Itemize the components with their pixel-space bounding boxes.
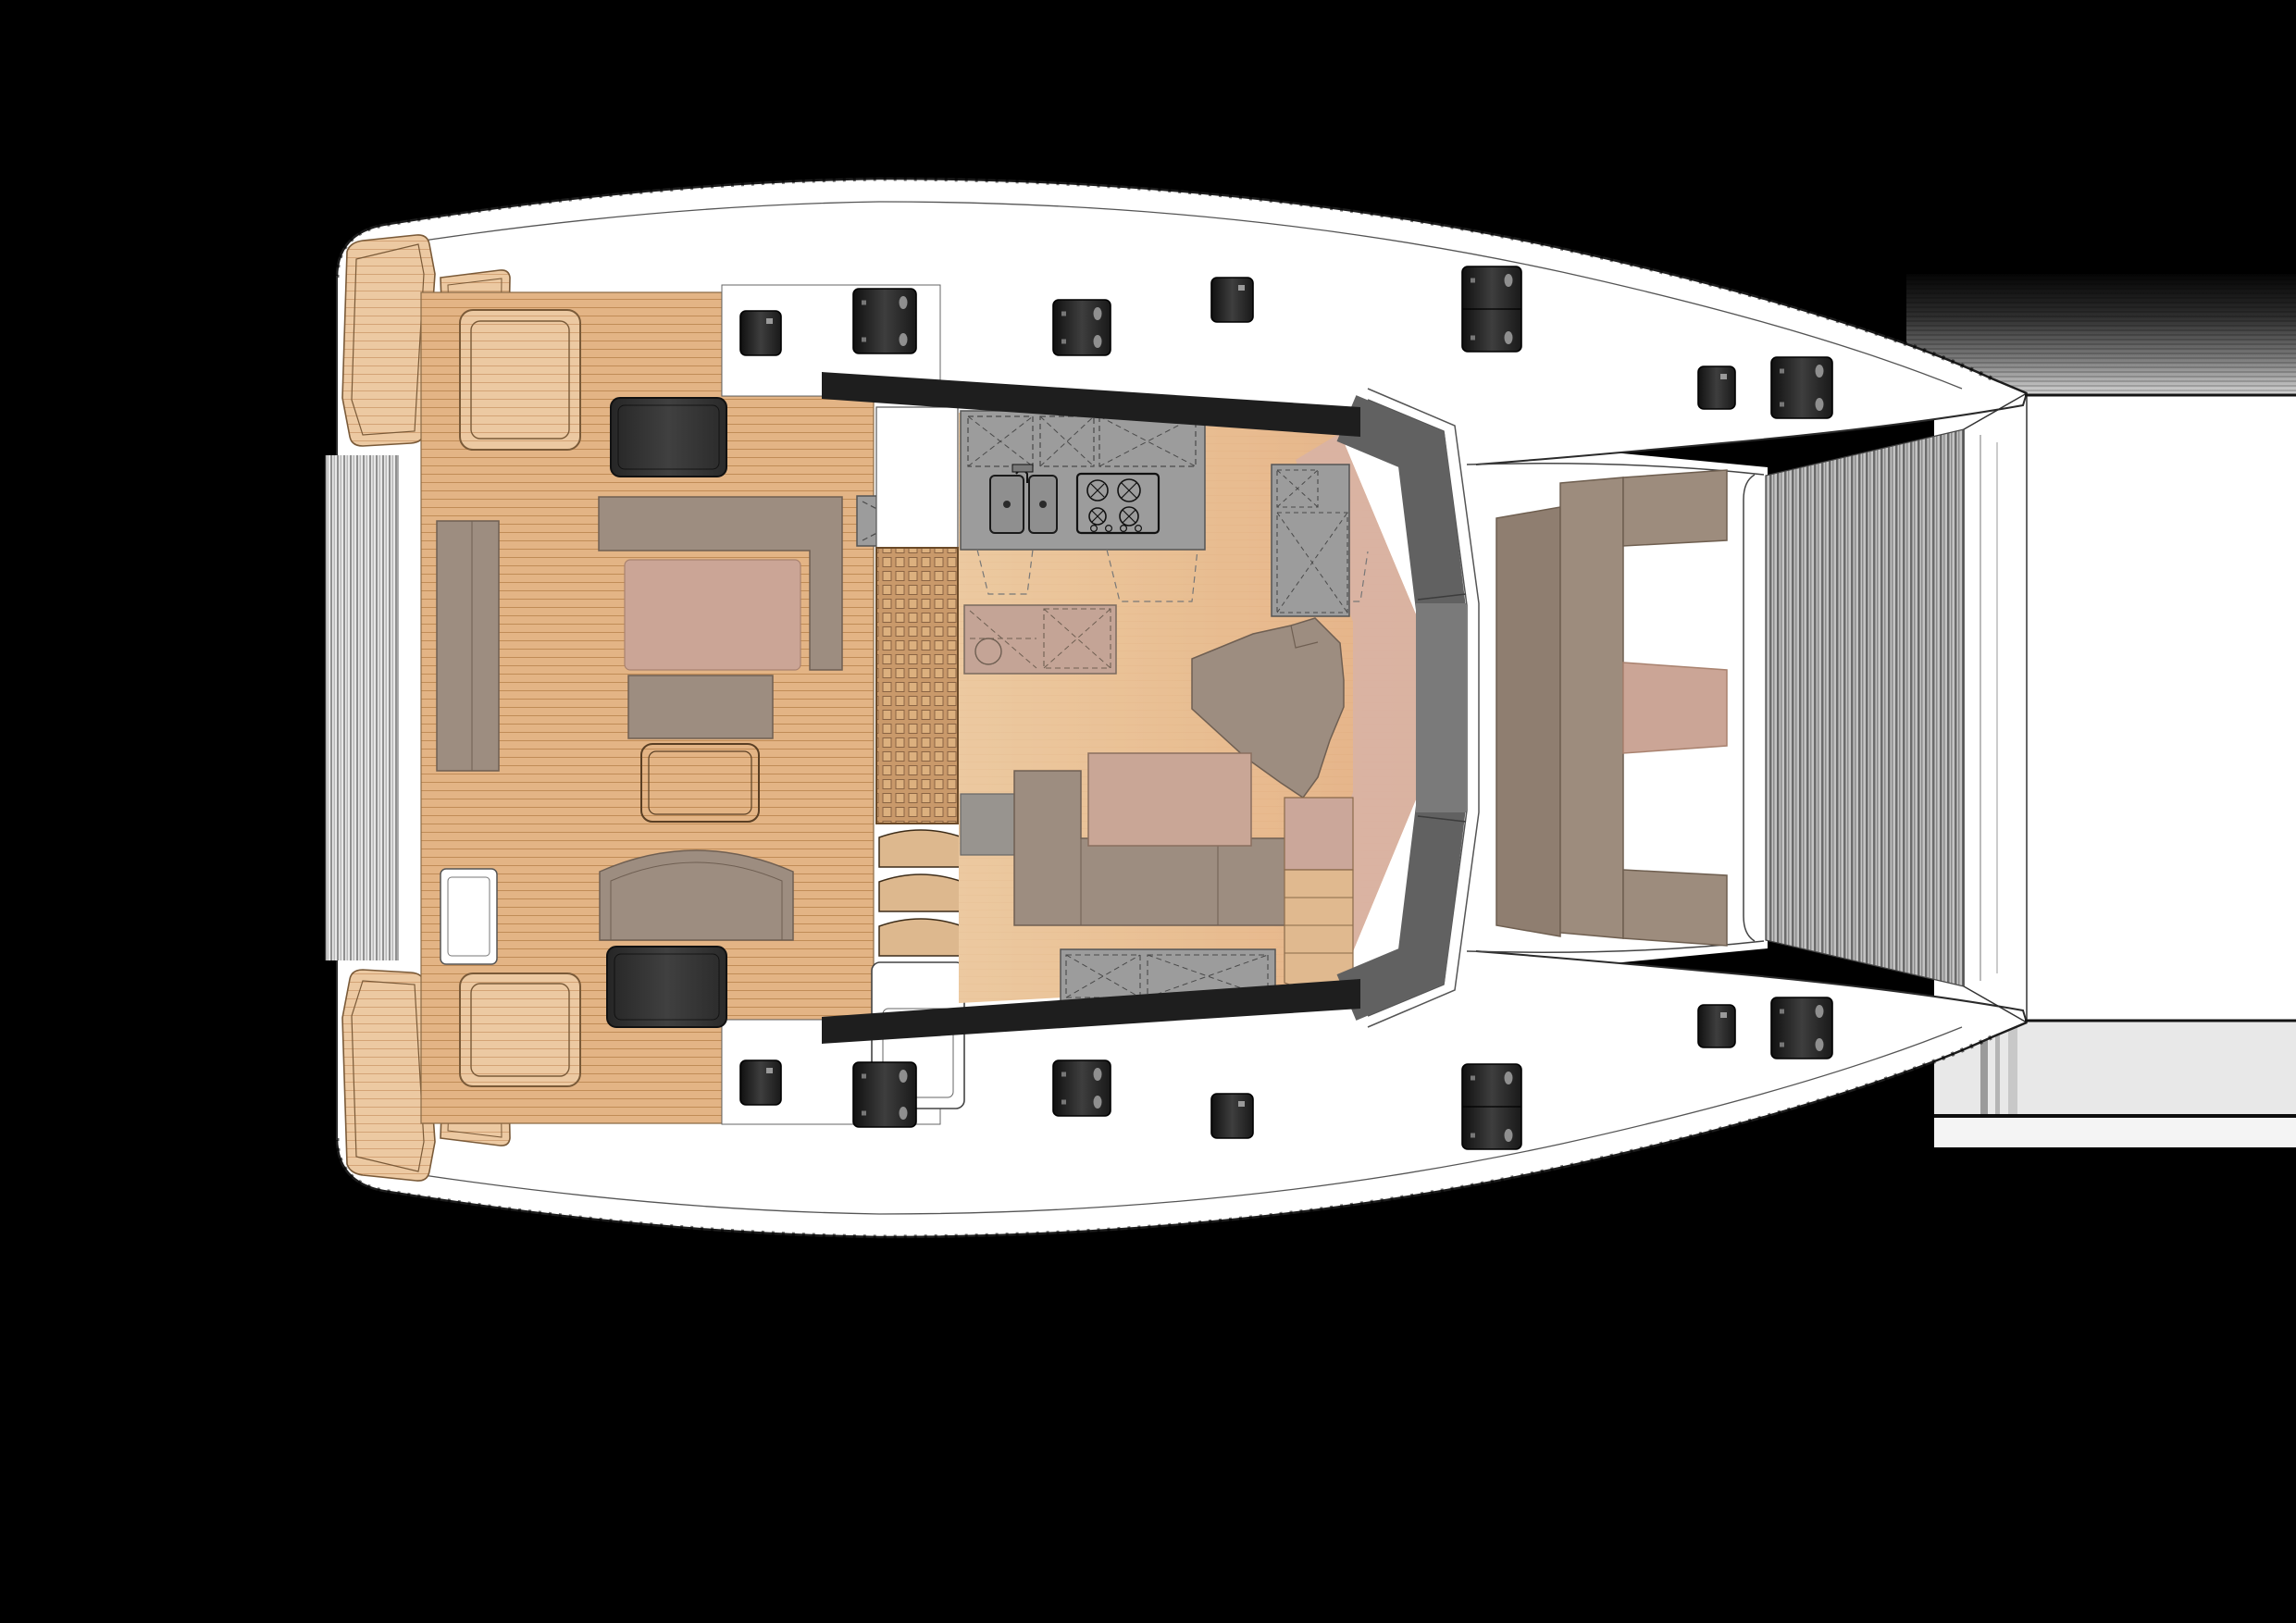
step-2 <box>879 874 962 911</box>
deck-hatch-medium-2 <box>1053 300 1111 355</box>
hatch-lid <box>1211 278 1253 322</box>
hatch-screw-icon-1 <box>1061 340 1066 344</box>
fwd-bench-backrest <box>1496 507 1560 936</box>
hatch-screw-icon-1 <box>1780 1043 1784 1047</box>
cockpit-table <box>641 744 759 822</box>
hatch-latch-icon <box>1720 374 1727 379</box>
hatch-screw-icon-1 <box>1471 1134 1475 1138</box>
door-panel <box>876 407 958 548</box>
deck-hatch-small-0 <box>740 311 781 355</box>
cockpit-bench-starboard-aft <box>460 973 580 1086</box>
step-1 <box>879 830 962 867</box>
hatch-screw-icon-0 <box>1061 312 1066 316</box>
hatch-hinge-icon-1 <box>1094 1096 1102 1109</box>
deck-hatch-medium-9 <box>1053 1060 1111 1116</box>
hatch-hinge-icon-1 <box>900 1107 908 1120</box>
hatch-hinge-icon-1 <box>900 333 908 346</box>
step-3 <box>879 919 962 956</box>
deck-hatch-small-7 <box>740 1060 781 1105</box>
hatch-lid <box>1053 300 1111 355</box>
hatch-screw-icon-1 <box>862 1111 866 1116</box>
hatch-lid <box>740 311 781 355</box>
galley-hob <box>1077 474 1159 533</box>
hatch-lid <box>1698 1005 1735 1047</box>
island-body <box>964 605 1116 674</box>
dining-area <box>1014 753 1286 925</box>
hatch-hinge-icon-0 <box>1816 365 1824 378</box>
deck-hatch-large-13 <box>1771 997 1832 1059</box>
cockpit-bench-port-aft <box>460 310 580 450</box>
forward-cockpit <box>1496 470 1727 946</box>
hull-stairs-starboard <box>1285 798 1353 997</box>
fwd-bench-arm-starboard <box>1623 870 1727 946</box>
galley-island <box>964 605 1116 674</box>
water-light-band <box>1934 1118 2296 1147</box>
cockpit-bench-mid <box>628 675 773 738</box>
transom-bench-backrest <box>437 521 499 771</box>
hatch-screw-icon-0 <box>1471 279 1475 283</box>
hatch-screw-icon-0 <box>862 301 866 305</box>
deck-hatch-small-5 <box>1698 366 1735 409</box>
forward-crossbeam <box>1964 393 2027 1022</box>
hatch-screw-icon-0 <box>862 1074 866 1079</box>
hatch-hinge-icon-0 <box>1816 1005 1824 1018</box>
hatch-latch-icon <box>1238 285 1245 291</box>
water-streak-v3 <box>2008 1022 2017 1114</box>
hatch-lid <box>853 1062 916 1127</box>
deck-hatch-small-12 <box>1698 1005 1735 1047</box>
port-aft-bench <box>460 310 580 450</box>
hob-frame <box>1077 474 1159 533</box>
dining-table <box>1088 753 1251 846</box>
fridge-body <box>1272 465 1349 616</box>
deck-hatch-large-1 <box>853 289 916 353</box>
deck-hatch-large-6 <box>1771 357 1832 418</box>
hatch-lid <box>1211 1094 1253 1138</box>
hatch-screw-icon-1 <box>1471 336 1475 341</box>
deck-hatch-small-3 <box>1211 278 1253 322</box>
hatch-hinge-icon-1 <box>1505 331 1513 344</box>
hatch-latch-icon <box>1720 1012 1727 1018</box>
starboard-aft-bench <box>460 973 580 1086</box>
cockpit-arched-seat <box>600 850 793 940</box>
fwd-bench-seat <box>1560 477 1623 938</box>
trampoline <box>1766 429 1964 986</box>
hatch-hinge-icon-0 <box>900 1070 908 1083</box>
salon <box>959 411 1416 1003</box>
hatch-lid <box>1771 997 1832 1059</box>
forward-cockpit-table <box>1623 663 1727 753</box>
fridge-cabinet <box>1272 465 1349 616</box>
hatch-hinge-icon-1 <box>1816 398 1824 411</box>
door-threshold-mat <box>876 548 958 824</box>
hatch-latch-icon <box>1238 1101 1245 1107</box>
hatch-hinge-icon-0 <box>1094 307 1102 320</box>
hatch-hinge-icon-0 <box>900 296 908 309</box>
swim-platform-slats <box>326 455 398 960</box>
sink-2-drain <box>1039 501 1047 508</box>
hatch-screw-icon-0 <box>1471 1076 1475 1081</box>
water-edge-line <box>1934 1114 2296 1118</box>
hatch-screw-icon-1 <box>1780 403 1784 407</box>
hatch-hinge-icon-0 <box>1505 274 1513 287</box>
hatch-screw-icon-1 <box>862 338 866 342</box>
hatch-lid <box>740 1060 781 1105</box>
hatch-screw-icon-0 <box>1780 369 1784 374</box>
cockpit-module-starboard <box>607 947 726 1027</box>
galley-faucet-base <box>1012 465 1033 472</box>
hatch-hinge-icon-1 <box>1094 335 1102 348</box>
trampoline-area <box>1744 429 1964 986</box>
aft-cockpit <box>421 285 940 1124</box>
hatch-lid <box>1698 366 1735 409</box>
hatch-hinge-icon-0 <box>1505 1072 1513 1084</box>
hatch-screw-icon-0 <box>1061 1072 1066 1077</box>
hatch-screw-icon-1 <box>1061 1100 1066 1105</box>
fwd-bench-arm-port <box>1623 470 1727 546</box>
salon-side-cabinet <box>961 794 1016 855</box>
deck-hatch-small-10 <box>1211 1094 1253 1138</box>
deck-plan-svg <box>0 0 2296 1623</box>
cockpit-sofa-cushion <box>625 560 800 670</box>
deck-hatch-double-11 <box>1462 1064 1521 1149</box>
hatch-lid <box>853 289 916 353</box>
sink-1-drain <box>1003 501 1011 508</box>
deck-hatch-large-8 <box>853 1062 916 1127</box>
deck-plan-screenshot <box>0 0 2296 1623</box>
hatch-hinge-icon-0 <box>1094 1068 1102 1081</box>
cockpit-wet-bar <box>611 398 726 477</box>
deck-hatch-double-4 <box>1462 266 1521 352</box>
hatch-hinge-icon-1 <box>1505 1129 1513 1142</box>
hatch-hinge-icon-1 <box>1816 1038 1824 1051</box>
flybridge-steps <box>879 830 962 956</box>
hatch-lid <box>1053 1060 1111 1116</box>
hatch-lid <box>1771 357 1832 418</box>
stairs-landing <box>1285 798 1353 870</box>
engine-hatch <box>441 869 497 964</box>
hatch-latch-icon <box>766 318 773 324</box>
hatch-latch-icon <box>766 1068 773 1073</box>
hatch-screw-icon-0 <box>1780 1010 1784 1014</box>
